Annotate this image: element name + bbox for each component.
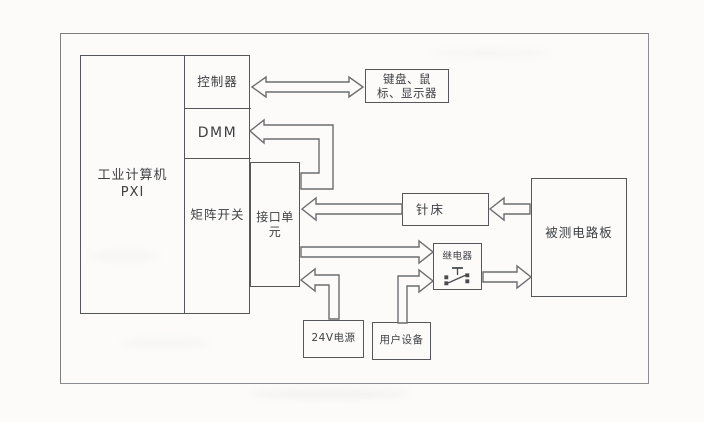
- node-dmm: DMM: [184, 109, 251, 159]
- matrix-switch-label: 矩阵开关: [190, 207, 244, 223]
- controller-label: 控制器: [197, 74, 238, 90]
- keyboard-label-line2: 标、显示器: [377, 86, 437, 100]
- node-board-under-test: 被测电路板: [531, 178, 627, 297]
- scan-smudge: [250, 390, 410, 398]
- industrial-computer-label: 工业计算机 PXI: [81, 56, 184, 313]
- 24v-power-label: 24V电源: [311, 332, 355, 345]
- industrial-computer-label-line2: PXI: [121, 185, 145, 201]
- industrial-computer-label-line1: 工业计算机: [97, 168, 167, 184]
- node-industrial-computer: 工业计算机 PXI 控制器 DMM 矩阵开关: [80, 55, 250, 314]
- interface-unit-label-line2: 元: [269, 225, 282, 240]
- user-equipment-label: 用户设备: [380, 334, 424, 347]
- needle-bed-label: 针床: [416, 202, 445, 218]
- scan-smudge: [120, 338, 210, 348]
- scan-smudge: [90, 250, 160, 262]
- dmm-label: DMM: [198, 125, 237, 143]
- diagram-stage: 工业计算机 PXI 控制器 DMM 矩阵开关 接口单 元 键盘、鼠 标、显示器 …: [0, 0, 704, 422]
- interface-unit-label-line1: 接口单: [256, 210, 294, 225]
- board-under-test-label: 被测电路板: [545, 225, 613, 241]
- node-controller: 控制器: [184, 56, 251, 109]
- node-matrix-switch: 矩阵开关: [184, 159, 251, 315]
- node-relay: 继电器: [433, 243, 482, 290]
- node-needle-bed: 针床: [402, 193, 489, 226]
- relay-contacts-icon: [441, 264, 475, 286]
- relay-label: 继电器: [442, 251, 472, 263]
- scan-smudge: [430, 48, 550, 58]
- node-keyboard-mouse-display: 键盘、鼠 标、显示器: [365, 69, 449, 103]
- node-interface-unit: 接口单 元: [250, 162, 300, 287]
- keyboard-label-line1: 键盘、鼠: [383, 72, 431, 86]
- node-user-equipment: 用户设备: [372, 322, 431, 360]
- node-24v-power: 24V电源: [303, 320, 364, 358]
